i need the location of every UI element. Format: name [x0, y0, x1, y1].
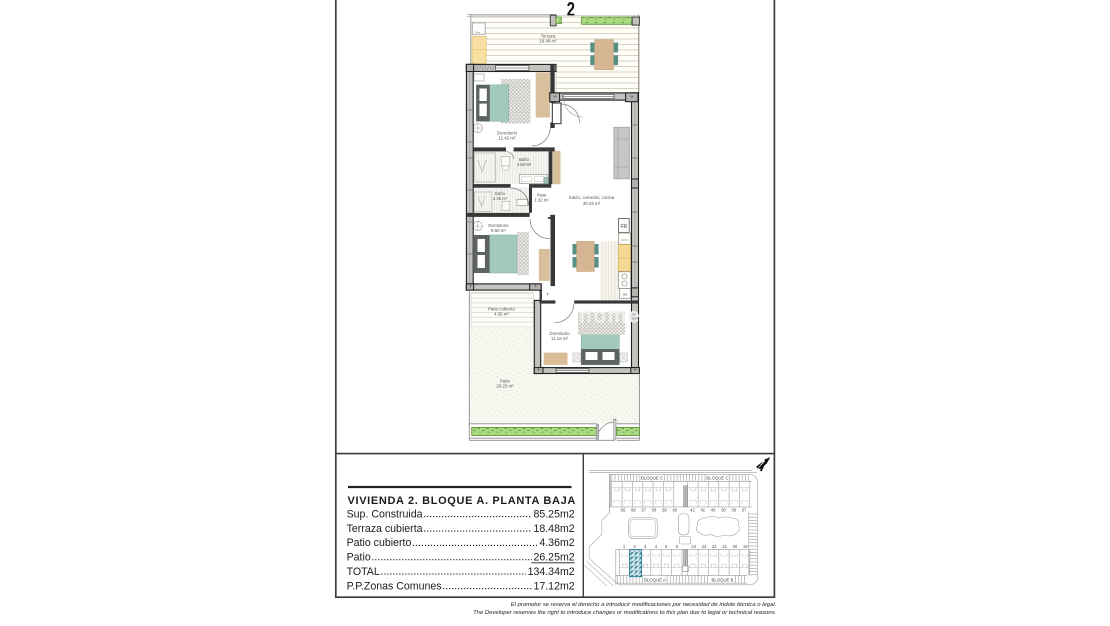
svg-text:41: 41: [700, 508, 705, 513]
svg-text:4.60 M²: 4.60 M²: [517, 162, 532, 167]
svg-text:18.48m2: 18.48m2: [533, 523, 574, 535]
svg-text:11.16 m²: 11.16 m²: [551, 336, 569, 341]
svg-text:Salón, comedor, cocina: Salón, comedor, cocina: [569, 195, 615, 200]
svg-text:85.25m2: 85.25m2: [533, 508, 574, 520]
svg-text:Patio: Patio: [347, 552, 371, 564]
svg-text:3.35 m²: 3.35 m²: [493, 196, 508, 201]
svg-text:22: 22: [712, 544, 717, 549]
svg-text:40: 40: [711, 508, 716, 513]
svg-text:TOTAL: TOTAL: [347, 566, 380, 578]
svg-text:11.42 m²: 11.42 m²: [498, 136, 516, 141]
svg-text:El promotor se reserva el dere: El promotor se reserva el derecho a intr…: [511, 602, 777, 608]
svg-text:57: 57: [641, 508, 646, 513]
svg-text:19: 19: [743, 544, 748, 549]
svg-text:Patio cubierto: Patio cubierto: [347, 537, 412, 549]
svg-text:The Developer reserves the rig: The Developer reserves the right to intr…: [473, 610, 776, 616]
svg-text:BLOQUE C: BLOQUE C: [706, 476, 728, 481]
svg-text:Terraza cubierta: Terraza cubierta: [347, 523, 423, 535]
svg-text:4.36m2: 4.36m2: [539, 537, 574, 549]
svg-text:BLOQUE C: BLOQUE C: [641, 476, 663, 481]
svg-text:T: T: [546, 292, 549, 297]
svg-text:BLOQUE B: BLOQUE B: [712, 577, 734, 582]
svg-text:Sup. Construida: Sup. Construida: [347, 508, 423, 520]
svg-text:59: 59: [662, 508, 667, 513]
svg-text:20: 20: [733, 544, 738, 549]
svg-text:VIVIENDA 2. BLOQUE A. PLANTA B: VIVIENDA 2. BLOQUE A. PLANTA BAJA: [348, 495, 576, 507]
svg-text:42: 42: [690, 508, 695, 513]
svg-text:FR: FR: [620, 224, 627, 230]
svg-text:P.P.Zonas Comunes: P.P.Zonas Comunes: [347, 580, 442, 592]
svg-text:66: 66: [631, 508, 636, 513]
svg-text:65: 65: [621, 508, 626, 513]
svg-text:26.25m2: 26.25m2: [533, 552, 574, 564]
svg-text:BLOQUE A: BLOQUE A: [644, 577, 666, 582]
svg-text:4.36 m²: 4.36 m²: [494, 312, 509, 317]
svg-text:37: 37: [742, 508, 747, 513]
svg-text:H: H: [623, 292, 626, 297]
svg-text:17.12m2: 17.12m2: [533, 580, 574, 592]
svg-text:26.25 m²: 26.25 m²: [496, 384, 514, 389]
svg-text:38: 38: [731, 508, 736, 513]
svg-text:21: 21: [722, 544, 727, 549]
svg-text:134.34m2: 134.34m2: [528, 566, 575, 578]
svg-text:39: 39: [721, 508, 726, 513]
svg-text:30.02 m²: 30.02 m²: [583, 201, 601, 206]
svg-text:nome: nome: [579, 305, 641, 328]
svg-text:24: 24: [691, 544, 696, 549]
svg-text:18.48 m²: 18.48 m²: [539, 39, 557, 44]
svg-text:58: 58: [652, 508, 657, 513]
svg-text:1.32 m²: 1.32 m²: [534, 198, 549, 203]
svg-text:23: 23: [702, 544, 707, 549]
svg-text:9.50 m²: 9.50 m²: [491, 228, 506, 233]
svg-text:60: 60: [672, 508, 677, 513]
